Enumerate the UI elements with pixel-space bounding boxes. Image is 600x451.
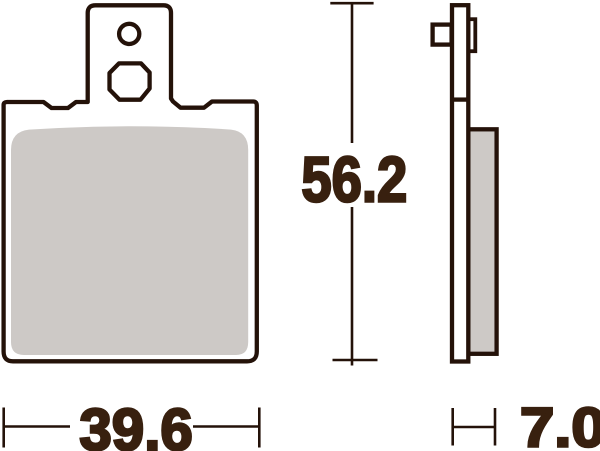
svg-text:7.0: 7.0 bbox=[520, 397, 600, 451]
svg-text:56.2: 56.2 bbox=[301, 143, 407, 215]
svg-text:39.6: 39.6 bbox=[79, 398, 193, 451]
